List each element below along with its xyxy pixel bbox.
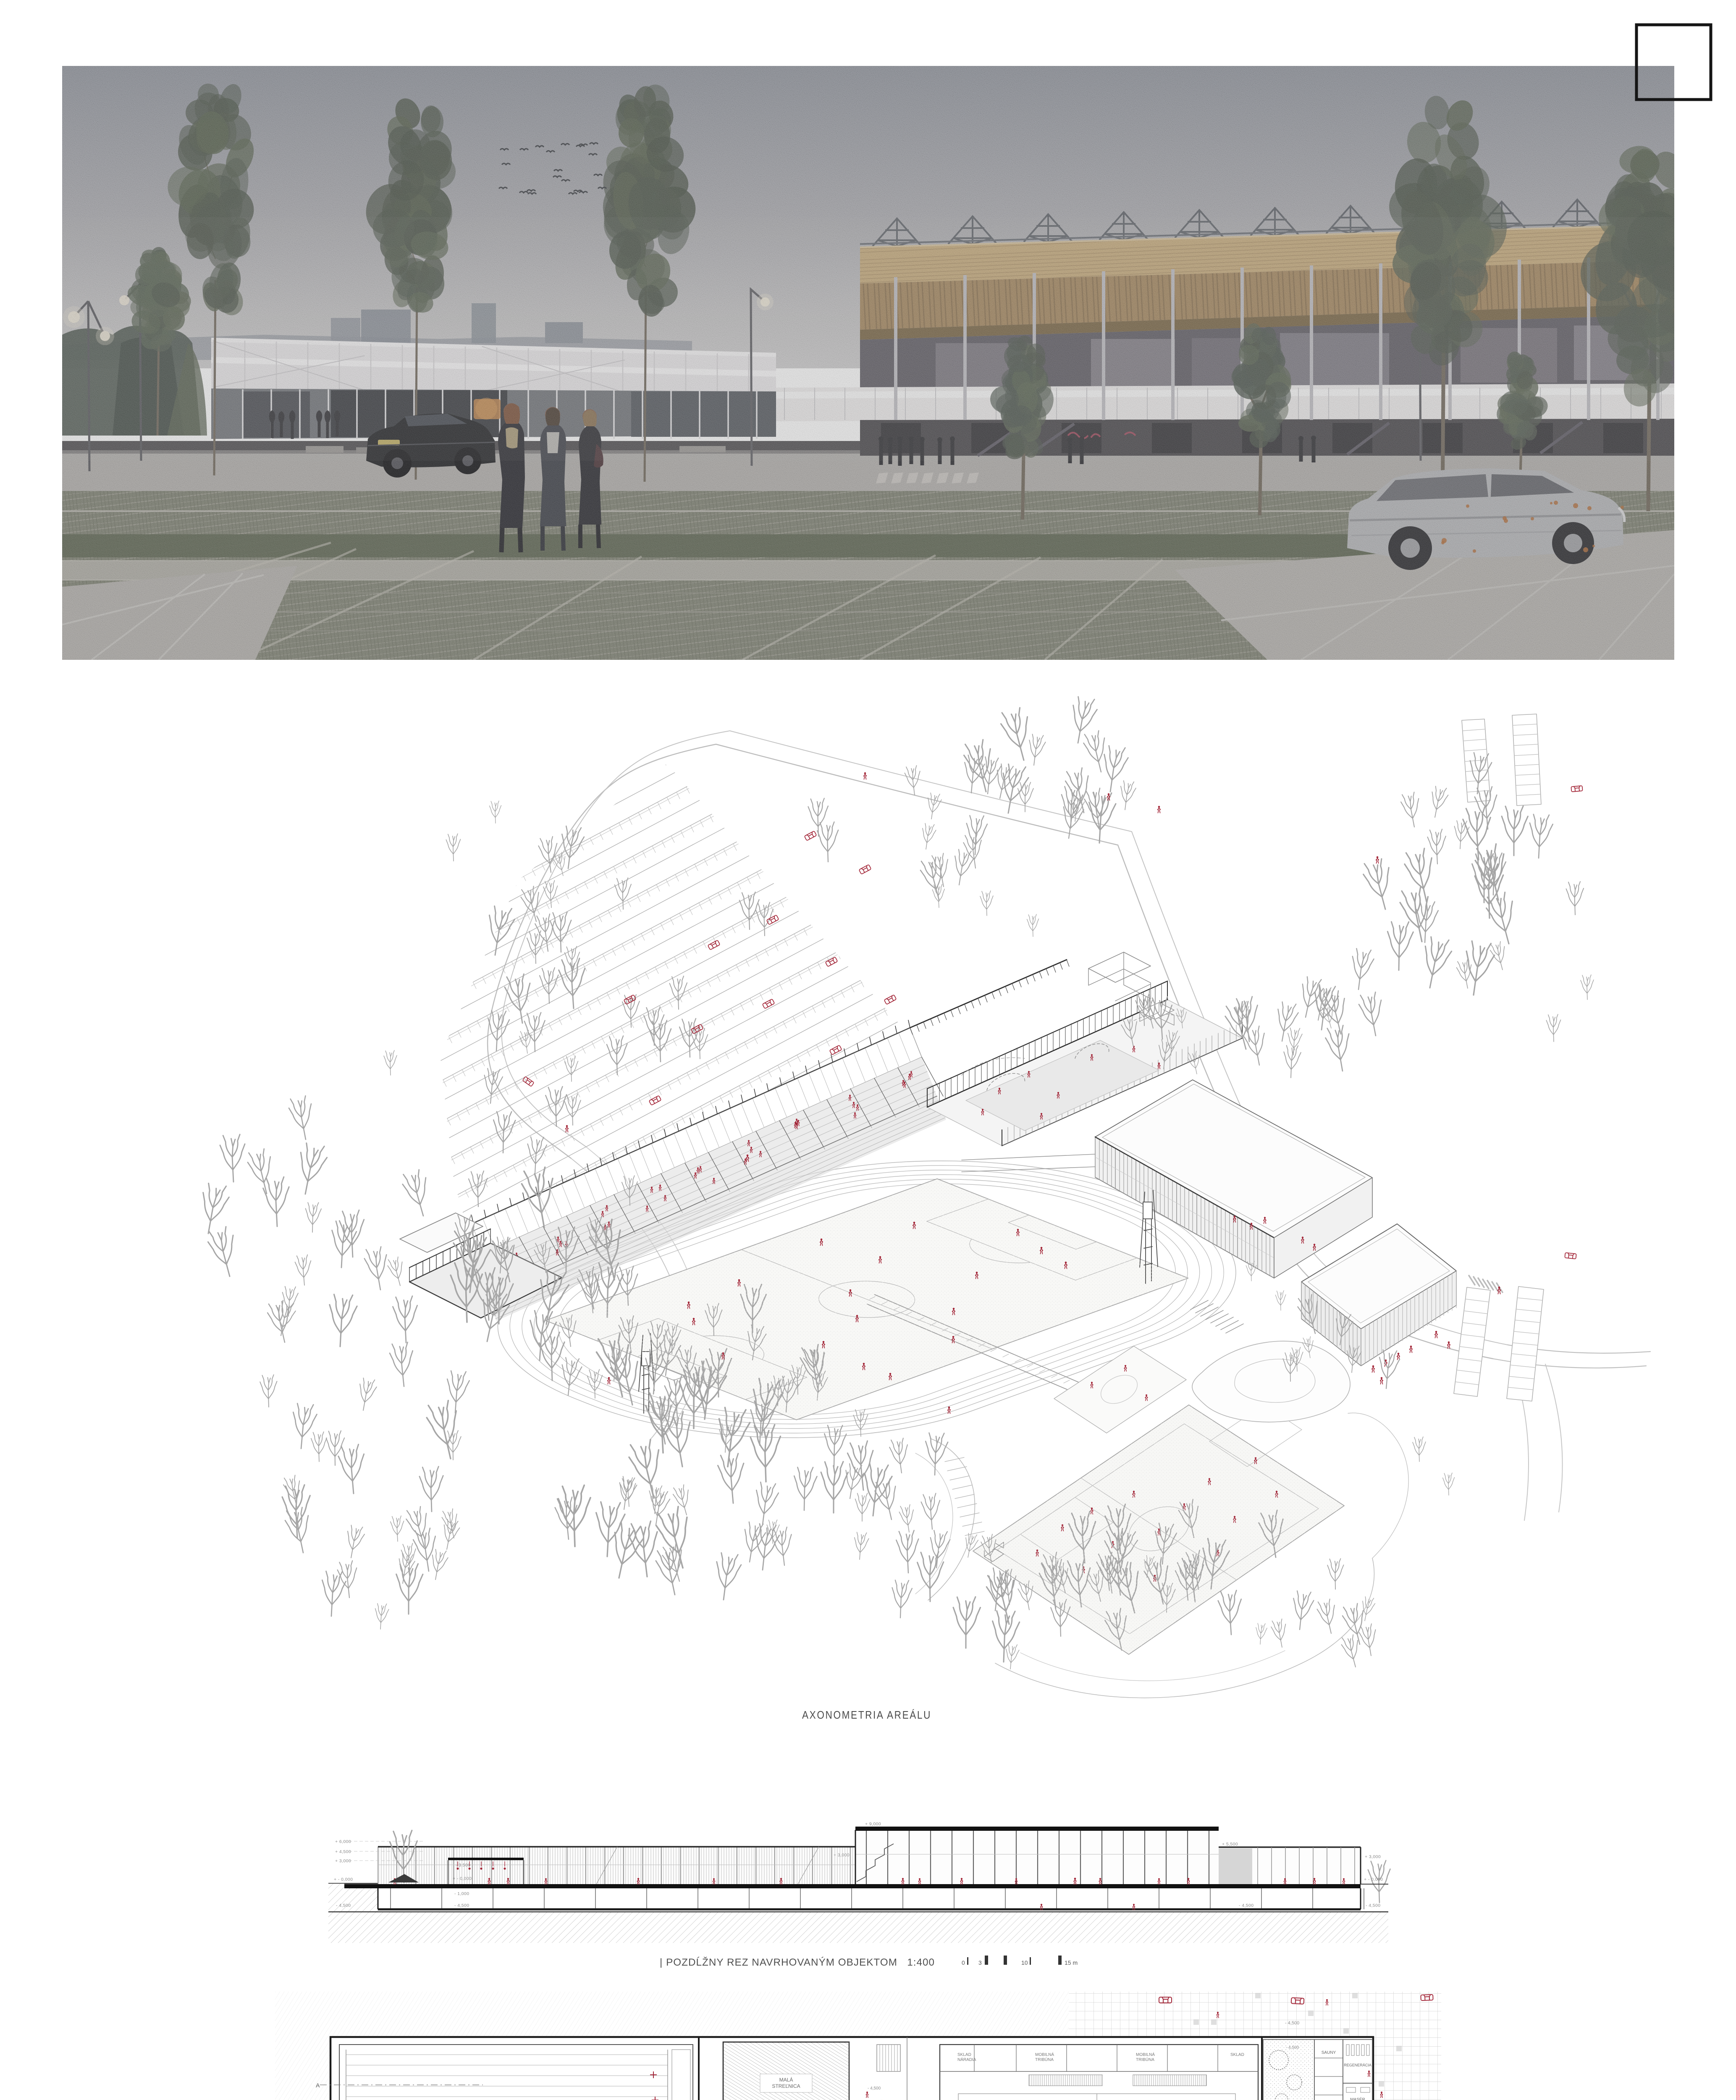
svg-text:- 4,500: - 4,500: [1366, 1903, 1381, 1908]
svg-text:TRIBÚNA: TRIBÚNA: [1136, 2057, 1154, 2062]
svg-text:0: 0: [962, 1959, 965, 1966]
svg-text:- 3,500: - 3,500: [456, 1863, 471, 1868]
svg-text:REGENERÁCIA: REGENERÁCIA: [1344, 2063, 1371, 2067]
svg-text:MALÁ: MALÁ: [779, 2076, 793, 2083]
svg-text:MASÉR: MASÉR: [1350, 2097, 1365, 2100]
svg-text:+ - 0,000: + - 0,000: [1364, 1877, 1383, 1882]
svg-text:- 4,500: - 4,500: [868, 2086, 881, 2091]
svg-text:- 4,500: - 4,500: [1286, 2045, 1299, 2050]
svg-text:10: 10: [1021, 1959, 1028, 1966]
svg-text:| POZDĹŽNY REZ NAVRHOVANÝM OBJ: | POZDĹŽNY REZ NAVRHOVANÝM OBJEKTOM 1:40…: [660, 1957, 935, 1968]
svg-text:+ 4,500: + 4,500: [335, 1849, 351, 1854]
svg-text:+ 3,000: + 3,000: [1365, 1854, 1381, 1859]
svg-text:15 m: 15 m: [1065, 1959, 1078, 1966]
svg-text:- 4,500: - 4,500: [1239, 1903, 1254, 1908]
svg-text:SAUNY: SAUNY: [1322, 2050, 1336, 2055]
svg-text:SKLAD: SKLAD: [957, 2053, 971, 2057]
svg-text:+ - 0,000: + - 0,000: [453, 1876, 472, 1881]
svg-text:+ 6,000: + 6,000: [335, 1839, 351, 1844]
svg-text:TRIBÚNA: TRIBÚNA: [1035, 2057, 1054, 2062]
svg-text:A: A: [316, 2082, 320, 2089]
svg-text:+ 3,000: + 3,000: [834, 1853, 850, 1858]
svg-text:MOBILNÁ: MOBILNÁ: [1136, 2052, 1155, 2057]
svg-text:+ - 0,000: + - 0,000: [334, 1877, 353, 1882]
svg-text:STREĽNICA: STREĽNICA: [772, 2083, 800, 2089]
svg-text:+ 9,000: + 9,000: [865, 1822, 881, 1827]
svg-text:3: 3: [978, 1959, 982, 1966]
svg-text:+ 3,000: + 3,000: [335, 1858, 351, 1864]
svg-text:MOBILNÁ: MOBILNÁ: [1035, 2052, 1054, 2057]
svg-text:+ 5,500: + 5,500: [1222, 1842, 1238, 1847]
svg-text:AXONOMETRIA AREÁLU: AXONOMETRIA AREÁLU: [802, 1709, 931, 1721]
svg-text:- 4,500: - 4,500: [1285, 2021, 1299, 2026]
svg-text:- 1,000: - 1,000: [454, 1891, 469, 1896]
svg-text:- 4,500: - 4,500: [454, 1903, 469, 1908]
svg-text:- 4,500: - 4,500: [336, 1903, 351, 1908]
svg-text:SKLAD: SKLAD: [1230, 2053, 1244, 2057]
svg-text:NÁRADIA: NÁRADIA: [957, 2057, 976, 2062]
